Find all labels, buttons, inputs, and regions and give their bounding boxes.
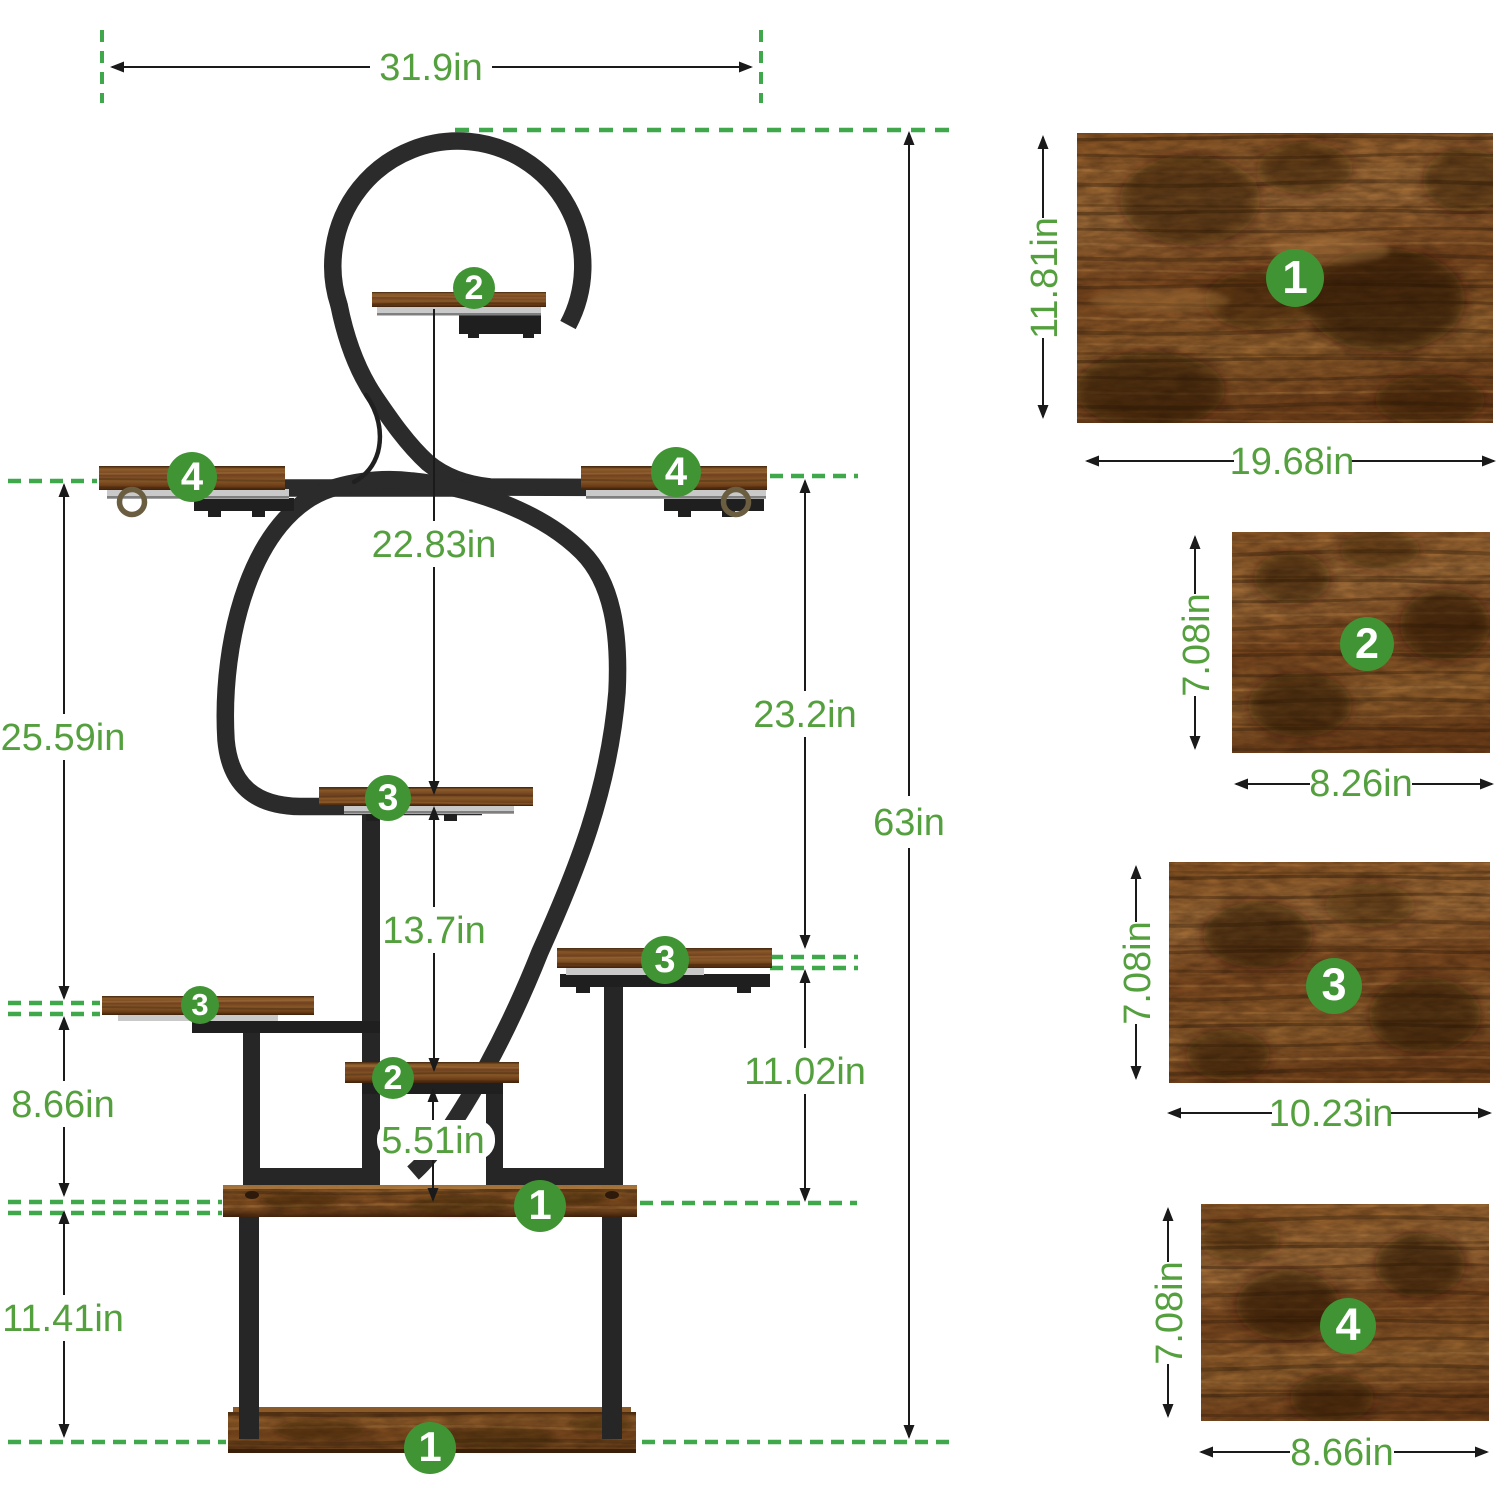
svg-text:2: 2 bbox=[465, 269, 484, 307]
svg-text:3: 3 bbox=[1321, 959, 1346, 1010]
svg-text:3: 3 bbox=[654, 939, 675, 981]
svg-text:8.66in: 8.66in bbox=[11, 1084, 115, 1126]
svg-text:11.81in: 11.81in bbox=[1024, 217, 1066, 339]
svg-text:13.7in: 13.7in bbox=[382, 910, 486, 952]
svg-text:8.66in: 8.66in bbox=[1290, 1432, 1394, 1474]
svg-text:1: 1 bbox=[528, 1181, 551, 1228]
svg-text:7.08in: 7.08in bbox=[1176, 593, 1218, 697]
svg-text:31.9in: 31.9in bbox=[379, 47, 483, 89]
svg-text:1: 1 bbox=[418, 1423, 441, 1470]
svg-text:11.02in: 11.02in bbox=[744, 1051, 866, 1093]
svg-text:7.08in: 7.08in bbox=[1149, 1261, 1191, 1365]
svg-text:3: 3 bbox=[191, 987, 208, 1022]
svg-text:25.59in: 25.59in bbox=[1, 717, 126, 759]
svg-text:1: 1 bbox=[1282, 251, 1308, 303]
svg-text:10.23in: 10.23in bbox=[1269, 1093, 1394, 1135]
svg-text:23.2in: 23.2in bbox=[753, 694, 857, 736]
svg-text:4: 4 bbox=[1335, 1299, 1360, 1350]
svg-text:63in: 63in bbox=[873, 802, 945, 844]
svg-text:4: 4 bbox=[665, 450, 688, 494]
svg-text:5.51in: 5.51in bbox=[381, 1120, 485, 1162]
svg-text:2: 2 bbox=[1355, 620, 1379, 668]
svg-text:7.08in: 7.08in bbox=[1117, 921, 1159, 1025]
svg-text:22.83in: 22.83in bbox=[372, 524, 497, 566]
svg-text:3: 3 bbox=[378, 777, 399, 818]
svg-text:4: 4 bbox=[181, 455, 204, 499]
svg-text:11.41in: 11.41in bbox=[2, 1298, 124, 1340]
svg-text:8.26in: 8.26in bbox=[1309, 763, 1413, 805]
svg-text:19.68in: 19.68in bbox=[1230, 441, 1355, 483]
svg-text:2: 2 bbox=[384, 1059, 403, 1097]
